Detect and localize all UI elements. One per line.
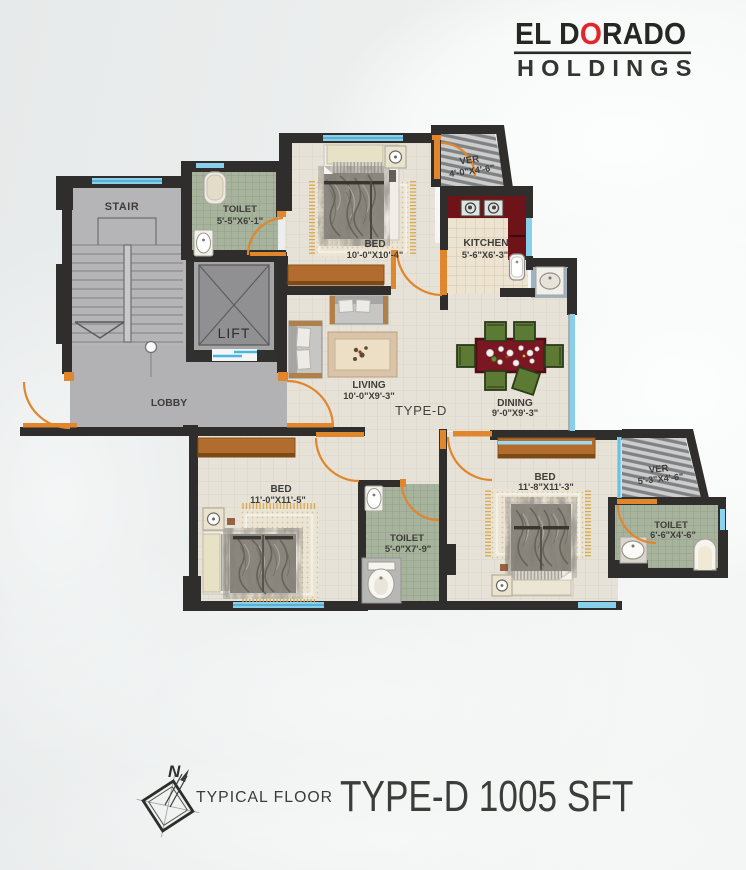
svg-text:EL DORADO: EL DORADO — [515, 17, 686, 51]
svg-text:5'-5"X6'-1": 5'-5"X6'-1" — [217, 216, 263, 226]
svg-text:LIFT: LIFT — [218, 325, 251, 341]
svg-text:TYPICAL FLOOR: TYPICAL FLOOR — [196, 789, 333, 806]
svg-text:6'-6"X4'-6": 6'-6"X4'-6" — [650, 530, 696, 540]
svg-text:10'-0"X10'-4": 10'-0"X10'-4" — [347, 250, 404, 260]
svg-text:BED: BED — [364, 239, 385, 250]
svg-text:TYPE-D: TYPE-D — [395, 403, 447, 418]
svg-text:11'-8"X11'-3": 11'-8"X11'-3" — [518, 482, 574, 492]
svg-text:9'-0"X9'-3": 9'-0"X9'-3" — [492, 408, 538, 418]
svg-text:TOILET: TOILET — [390, 533, 424, 544]
svg-text:TOILET: TOILET — [223, 204, 257, 215]
svg-text:LIVING: LIVING — [352, 380, 386, 391]
svg-text:TYPE-D 1005 SFT: TYPE-D 1005 SFT — [340, 772, 633, 821]
svg-text:LOBBY: LOBBY — [151, 398, 187, 409]
svg-text:STAIR: STAIR — [105, 201, 140, 213]
svg-text:5'-0"X7'-9": 5'-0"X7'-9" — [385, 544, 431, 554]
svg-text:11'-0"X11'-5": 11'-0"X11'-5" — [250, 495, 306, 505]
svg-text:10'-0"X9'-3": 10'-0"X9'-3" — [343, 391, 394, 401]
svg-text:HOLDINGS: HOLDINGS — [517, 55, 699, 81]
svg-text:N: N — [168, 762, 181, 781]
svg-text:KITCHEN: KITCHEN — [463, 238, 508, 249]
svg-text:BED: BED — [270, 484, 291, 495]
svg-text:5'-6"X6'-3": 5'-6"X6'-3" — [462, 250, 508, 260]
